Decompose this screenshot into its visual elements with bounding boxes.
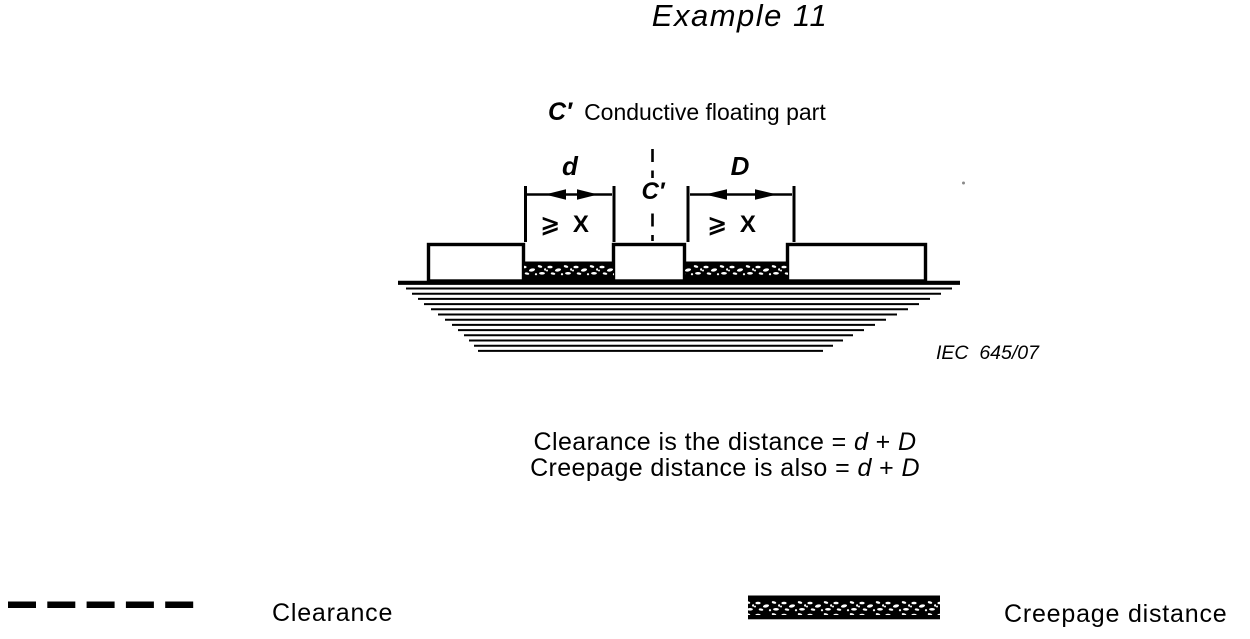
electrode-left	[429, 245, 524, 282]
creepage-fill-right	[685, 262, 788, 282]
electrode-middle	[614, 245, 685, 282]
creepage-fill-left	[524, 262, 614, 282]
caption-line-clearance: Clearance is the distance = d + D	[350, 430, 1100, 456]
figure-drawing	[0, 0, 1250, 639]
dimension-D-label: D	[715, 151, 765, 182]
floating-part-label: C′Conductive floating part	[548, 98, 826, 127]
caption: Clearance is the distance = d + D Creepa…	[350, 430, 1100, 481]
electrode-right	[788, 245, 926, 282]
legend-creepage-label: Creepage distance	[1004, 600, 1227, 629]
floating-part-text: Conductive floating part	[584, 99, 826, 125]
caption-line-creepage: Creepage distance is also = d + D	[350, 456, 1100, 482]
min-distance-left-label: ⩾ X	[526, 210, 606, 239]
insulator-hatching	[406, 289, 952, 351]
figure-title: Example 11	[540, 0, 940, 34]
iec-reference: IEC 645/07	[936, 342, 1039, 365]
dimension-d-label: d	[545, 151, 595, 182]
legend-clearance-label: Clearance	[272, 599, 393, 628]
min-distance-right-label: ⩾ X	[693, 210, 773, 239]
scan-artifact-dot	[962, 182, 965, 185]
floating-part-symbol: C′	[548, 98, 572, 126]
centerline-symbol: C′	[636, 178, 670, 208]
creepage-texture-bar-icon	[748, 596, 940, 620]
